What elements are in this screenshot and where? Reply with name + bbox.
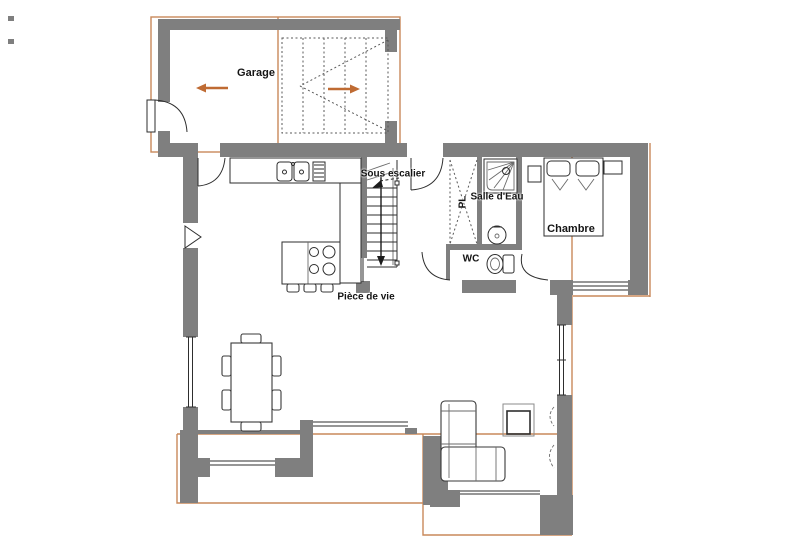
wall-segment	[540, 495, 573, 535]
shower	[484, 159, 517, 193]
wall-segment	[158, 30, 170, 102]
coffee-table	[503, 404, 534, 436]
label-closet: PL	[458, 196, 469, 209]
window-west	[186, 337, 196, 407]
garage-walls	[8, 16, 407, 157]
wall-segment	[462, 280, 516, 293]
window-terrace	[210, 461, 275, 465]
garage-arrow-left	[196, 84, 228, 93]
wall-segment	[446, 244, 516, 250]
stair-diagonal	[300, 86, 388, 131]
window-south-bay	[313, 422, 408, 426]
edge-mark	[8, 16, 14, 21]
label-bedroom: Chambre	[547, 223, 595, 235]
wall-segment	[550, 280, 573, 295]
bathroom-sink	[488, 226, 506, 244]
label-garage: Garage	[237, 67, 275, 79]
wall-segment	[630, 157, 648, 295]
wall-segment	[385, 121, 397, 143]
edge-mark	[8, 39, 14, 44]
wc-door	[422, 252, 450, 280]
wall-segment	[443, 143, 648, 157]
toilet	[487, 255, 514, 274]
chair	[272, 390, 281, 410]
lounge	[441, 401, 554, 481]
wall-segment	[180, 430, 198, 503]
chair	[241, 334, 261, 343]
wall-segment	[557, 395, 572, 495]
garage-house-door	[198, 158, 225, 186]
window-lounge-slider	[460, 491, 540, 494]
kitchen-island	[282, 242, 340, 292]
chair	[222, 356, 231, 376]
exterior-stairs-outline	[282, 38, 388, 133]
label-living-room: Pièce de vie	[337, 292, 394, 303]
label-wc: WC	[463, 254, 480, 265]
floor-plan: Garage Sous escalier Salle d'Eau PL WC C…	[0, 0, 800, 553]
bedroom-door	[521, 254, 548, 280]
curtain-mark	[550, 445, 555, 468]
window-vent-triangle	[185, 226, 201, 248]
label-bathroom: Salle d'Eau	[471, 192, 524, 203]
upper-floor-overlay	[151, 17, 650, 535]
wall-segment	[220, 143, 407, 157]
window-east	[557, 325, 566, 395]
chair	[272, 356, 281, 376]
chair	[241, 422, 261, 431]
sofa	[441, 401, 505, 481]
curtain-mark	[550, 407, 554, 426]
wall-segment	[183, 248, 198, 337]
floor-plan-svg	[0, 0, 800, 553]
dining-table	[231, 343, 272, 422]
wall-segment	[275, 458, 313, 477]
wall-segment	[198, 458, 210, 477]
stairs-down-arrow	[377, 175, 385, 266]
wall-segment	[405, 428, 417, 434]
wall-segment	[158, 131, 170, 143]
wall-segment	[158, 143, 198, 157]
stairs-arrow-right	[328, 85, 360, 94]
wall-segment	[183, 157, 198, 223]
wall-segment	[183, 407, 198, 430]
wall-segment	[446, 250, 450, 280]
chair	[222, 390, 231, 410]
wall-segment	[628, 280, 648, 295]
exterior-stairs	[282, 38, 388, 133]
bar-stools	[287, 284, 333, 292]
window-bedroom-south	[573, 281, 628, 291]
stair-diagonal	[300, 40, 388, 86]
nightstand-left	[528, 166, 541, 182]
garage-exterior-door	[147, 100, 187, 132]
label-under-stairs: Sous escalier	[361, 169, 425, 180]
nightstand-right	[604, 161, 622, 174]
overlay-garage-rect	[151, 17, 400, 152]
dining-set	[222, 334, 281, 431]
wall-segment	[158, 19, 400, 30]
wall-segment	[557, 295, 572, 325]
wall-segment	[430, 490, 460, 507]
